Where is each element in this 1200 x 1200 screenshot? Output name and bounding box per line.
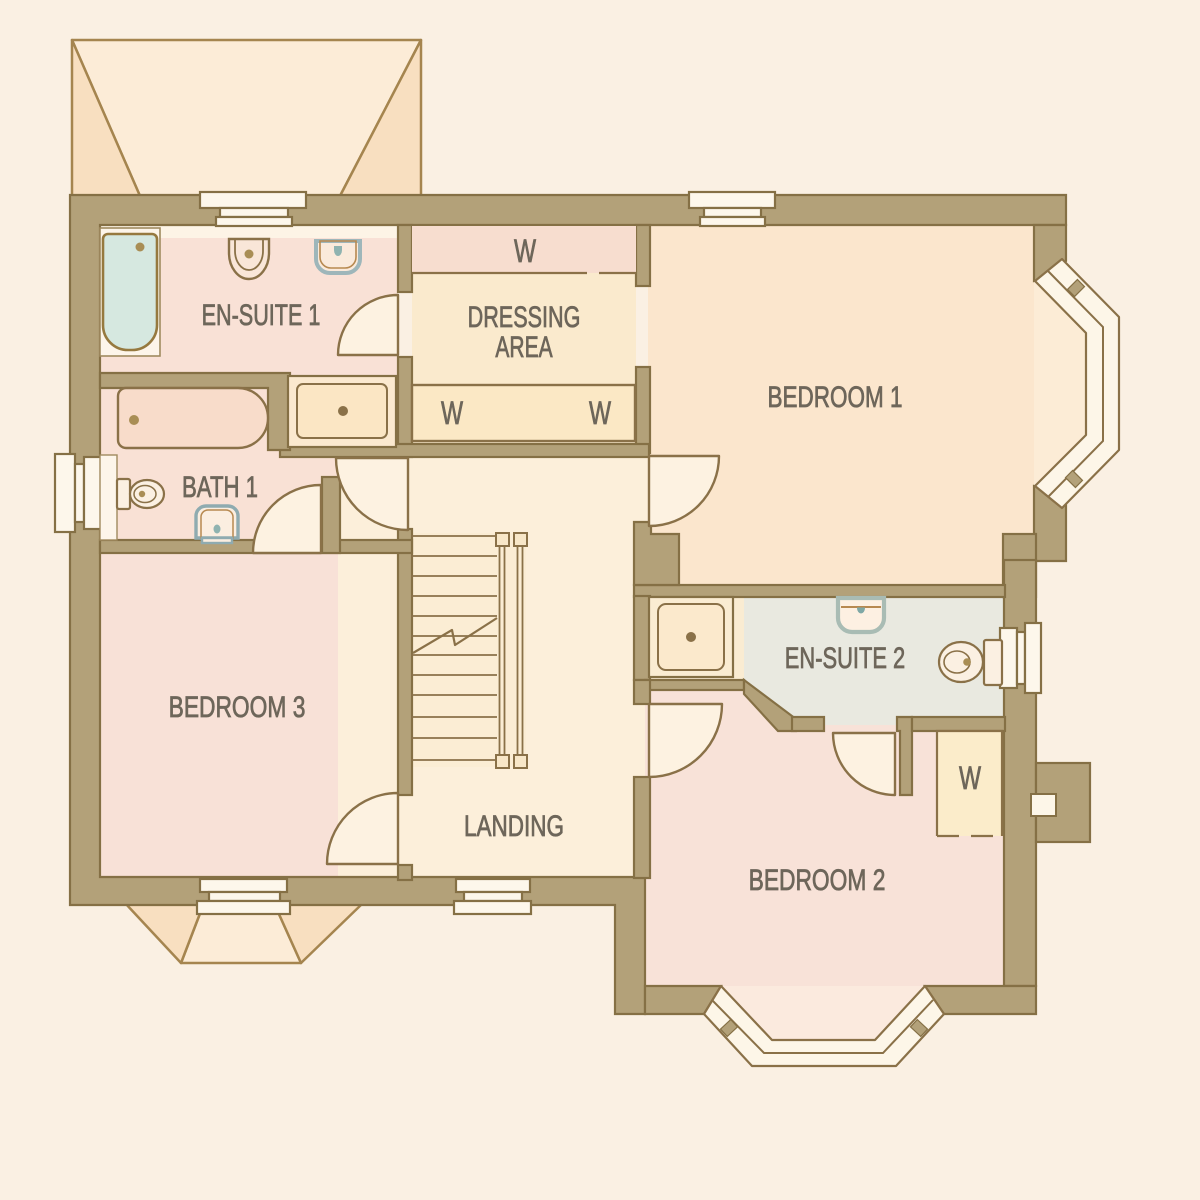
svg-text:EN-SUITE 2: EN-SUITE 2 (785, 641, 905, 675)
svg-text:EN-SUITE 1: EN-SUITE 1 (202, 297, 321, 331)
svg-text:W: W (441, 395, 464, 430)
svg-text:W: W (589, 395, 612, 430)
svg-text:DRESSING: DRESSING (468, 299, 581, 333)
svg-text:AREA: AREA (495, 332, 553, 364)
svg-text:BEDROOM 3: BEDROOM 3 (169, 690, 306, 724)
svg-text:W: W (959, 760, 982, 795)
svg-text:BEDROOM 1: BEDROOM 1 (768, 380, 903, 414)
svg-text:BATH 1: BATH 1 (182, 470, 258, 504)
svg-text:W: W (514, 233, 537, 268)
svg-text:LANDING: LANDING (464, 809, 564, 843)
svg-text:BEDROOM 2: BEDROOM 2 (749, 863, 886, 897)
